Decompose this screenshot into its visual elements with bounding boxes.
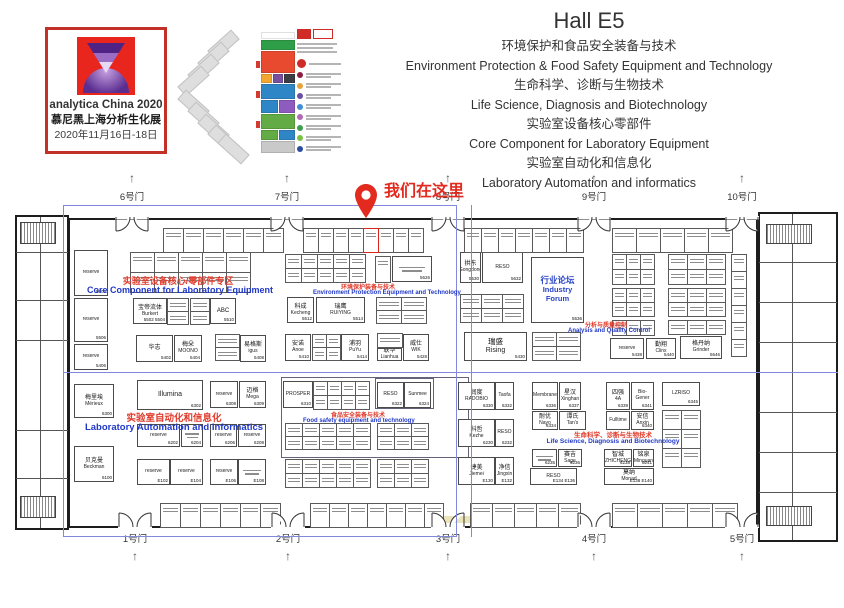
booth: 瑞鹰RUIYING5514	[316, 297, 365, 323]
booth-cell	[706, 302, 726, 317]
booth-name-en: Sunmee	[408, 392, 427, 398]
booth-cell	[285, 459, 303, 474]
booth-cell	[532, 228, 550, 253]
booth-number: E130	[482, 479, 493, 484]
booth-name-en: RUIYING	[330, 311, 351, 317]
booth-number: 6202	[168, 441, 178, 446]
booth-cell	[411, 459, 429, 474]
booth-number: 5428	[417, 355, 427, 360]
booth: RESO6232	[495, 419, 514, 447]
booth-cell	[411, 473, 429, 488]
zone-label-en: Environment Protection Equipment and Tec…	[313, 290, 457, 296]
booth-name-en: Jiemei	[469, 472, 483, 478]
booth: 莫纳MonadE138 E140	[604, 468, 654, 485]
booth: Illumina6302	[137, 380, 203, 410]
booth-cell	[333, 228, 349, 253]
booth: 四强4A6339	[606, 382, 630, 410]
booth: 易格斯igus5408	[240, 335, 266, 362]
booth-name-en: MOONO	[178, 349, 197, 355]
booth-number: 5630	[469, 277, 479, 282]
booth-name-en: reserve	[216, 469, 233, 475]
booth-cell	[183, 228, 204, 253]
booth-cell	[303, 228, 319, 253]
booth-name-en: Fulltime	[609, 418, 627, 424]
booth-cell	[336, 473, 354, 488]
booth-name-cn: 瑞盛	[488, 338, 503, 347]
booth-cell	[319, 423, 337, 437]
booth: 科成Kecheng5512	[287, 297, 314, 323]
booth-cell	[514, 503, 537, 528]
booth-cell	[302, 423, 320, 437]
booth-number: 6238	[620, 461, 630, 466]
booth: 格丹纳Grinder5646	[680, 336, 722, 359]
booth-cell	[401, 310, 427, 324]
booth-number: 6230	[483, 441, 493, 446]
booth-number: 6241	[642, 461, 652, 466]
booth-cell	[393, 228, 409, 253]
booth-name-en: RADOBIO	[465, 397, 488, 403]
booth-cell	[285, 268, 302, 283]
booth-cell	[394, 436, 412, 450]
gate-arrow-icon: ↑	[284, 171, 290, 185]
booth-number: 5646	[710, 353, 720, 358]
booth-cell	[160, 503, 181, 528]
booth-name-en: Mérieux	[85, 402, 103, 408]
booth-cell	[301, 268, 318, 283]
booth-cell	[376, 297, 402, 311]
gate-arrow-icon: ↑	[129, 171, 135, 185]
gate-doors-icon	[118, 512, 152, 528]
booth-cell	[681, 448, 701, 468]
booth-name-en: reserve	[83, 354, 100, 360]
booth-cell	[684, 228, 709, 253]
booth-cell	[336, 423, 354, 437]
booth-number: 6330	[483, 404, 493, 409]
booth-number: 6332	[502, 404, 512, 409]
booth-name-en: LZRISO	[672, 391, 690, 397]
booth-cell	[312, 347, 327, 361]
zone-label-en: Analysis and Quality Control	[568, 328, 646, 334]
booth-name-en: reserve	[83, 270, 100, 276]
gate-doors-icon	[270, 216, 304, 232]
booth: reserveE102	[137, 459, 170, 485]
booth-number: 6324	[419, 402, 429, 407]
booth-number: 6309	[254, 402, 264, 407]
booth-cell	[731, 322, 747, 340]
booth-cell	[687, 302, 707, 317]
booth-cell	[612, 254, 627, 270]
booth: Bio-Gener6341	[631, 382, 654, 410]
booth-cell	[706, 288, 726, 303]
gate-label: 2号门	[276, 531, 300, 545]
booth: 捷美JiemeiE130	[458, 457, 495, 485]
booth: 智城ZHICHENG6238	[604, 449, 632, 467]
booth-cell	[668, 302, 688, 317]
booth-name-en: Bio-Gener	[632, 390, 653, 402]
booth-cell	[319, 436, 337, 450]
booth: reserve5438	[610, 338, 644, 359]
booth-name-en: Beckman	[84, 465, 105, 471]
booth-cell	[215, 334, 240, 348]
booth-number: 5440	[664, 353, 674, 358]
booth-cell	[731, 305, 747, 323]
booth-name-en: reserve	[83, 317, 100, 323]
booth-number: 5406	[96, 364, 106, 369]
booth: Fulltime	[606, 411, 630, 430]
booth-name-en: Tan's	[567, 421, 579, 427]
booth-number: 6300	[102, 412, 112, 417]
booth-cell	[681, 429, 701, 449]
gate-label: 3号门	[436, 531, 460, 545]
booth-cell	[220, 503, 241, 528]
booth-cell	[355, 381, 370, 396]
booth-cell	[405, 503, 425, 528]
booth-cell	[353, 423, 371, 437]
booth-number: 5410	[299, 355, 309, 360]
location-pin-icon	[353, 183, 379, 219]
booth-cell	[481, 228, 499, 253]
booth-cell	[636, 228, 661, 253]
booth-number: 5506	[96, 336, 106, 341]
booth: PROSPER6310	[283, 381, 313, 408]
booth-cell	[353, 436, 371, 450]
stairs-icon	[20, 496, 56, 518]
booth-number: 5502 5504	[144, 318, 165, 323]
booth: reserve6308	[210, 381, 238, 408]
booth: RESOE134 E136	[530, 468, 577, 485]
booth-cell	[626, 302, 641, 317]
booth-cell	[333, 268, 350, 283]
booth-cell	[662, 448, 682, 468]
booth-number: 6236	[570, 461, 580, 466]
booth-cell	[515, 228, 533, 253]
booth-cell	[640, 288, 655, 303]
booth-name-en: Grinder	[693, 348, 710, 354]
booth-name-en: reserve	[215, 433, 232, 439]
booth-number: 5402	[161, 356, 171, 361]
booth-cell	[313, 395, 328, 410]
booth-name-en: RESO	[383, 392, 397, 398]
booth-cell	[190, 298, 210, 312]
booth-cell	[243, 228, 264, 253]
booth-cell	[612, 302, 627, 317]
booth-cell	[470, 503, 493, 528]
booth-cell	[301, 254, 318, 269]
booth-cell	[313, 381, 328, 396]
booth-name-en: Mega	[246, 395, 259, 401]
gate-arrow-icon: ↑	[285, 549, 291, 563]
booth: 安信Anxin6340	[631, 411, 654, 430]
booth-cell	[626, 288, 641, 303]
booth-number: 5438	[632, 353, 642, 358]
booth-cell	[731, 288, 747, 306]
booth-cell	[285, 423, 303, 437]
booth-name-en: WIK	[411, 348, 420, 354]
booth-cell	[319, 473, 337, 488]
gate-arrow-icon: ↑	[739, 549, 745, 563]
booth-name-en: RESO	[495, 265, 509, 271]
booth-cell	[687, 288, 707, 303]
booth-name-en: 4A	[615, 397, 621, 403]
gate-arrow-icon: ↑	[739, 171, 745, 185]
booth-name-en: igus	[248, 349, 257, 355]
booth: 瑞盛Rising5430	[464, 332, 527, 361]
gate-doors-icon	[577, 216, 611, 232]
booth-cell	[640, 254, 655, 270]
booth: 谭氏Tan's	[559, 411, 586, 430]
booth: ABC5510	[210, 298, 236, 324]
booth-number: 6308	[226, 402, 236, 407]
booth-cell	[460, 308, 482, 323]
booth-number: E132	[501, 479, 512, 484]
booth-cell	[285, 254, 302, 269]
booth: E108	[238, 459, 266, 485]
booth-number: 6339	[618, 404, 628, 409]
booth-name-cn: ABC	[217, 308, 229, 315]
booth-cell	[626, 254, 641, 270]
booth-cell	[498, 228, 516, 253]
booth-number: E108	[253, 479, 264, 484]
booth-cell	[215, 347, 240, 361]
booth-number: 6337	[569, 404, 579, 409]
industry-forum-booth: 行业论坛Industry Forum5536	[531, 257, 584, 323]
booth: 勤翔Clinx5440	[646, 338, 676, 359]
booth-cell	[302, 473, 320, 488]
gate-arrow-icon: ↑	[591, 171, 597, 185]
booth-number: 6235	[545, 461, 555, 466]
booth: RESO6322	[377, 382, 404, 408]
booth-name-en: reserve	[145, 469, 162, 475]
booth-cell	[178, 252, 203, 273]
booth-cell	[377, 333, 403, 348]
booth-name-en: Membrane	[533, 393, 557, 399]
booth-name-en: Taofa	[498, 393, 510, 399]
booth-cell	[285, 473, 303, 488]
booth-cell	[662, 410, 682, 430]
booth: reserveE106	[210, 459, 238, 485]
booth: reserveE104	[170, 459, 203, 485]
booth-number: 5408	[254, 356, 264, 361]
booth: 安诺Anoe5410	[285, 334, 311, 361]
booth-cell	[341, 381, 356, 396]
booth: 赛吉Sage6236	[558, 449, 582, 467]
floor-plan: 我们在这里 reserve5606reserve5506reserve5406宝…	[0, 0, 844, 608]
booth-cell	[637, 503, 663, 528]
booth-cell	[481, 308, 503, 323]
booth-name-en: Lianhua	[381, 355, 399, 361]
booth: Taofa6332	[495, 382, 514, 410]
booth-cell	[668, 288, 688, 303]
booth-cell	[200, 503, 221, 528]
booth-cell	[612, 228, 637, 253]
gate-label: 7号门	[275, 189, 299, 203]
booth-cell	[333, 254, 350, 269]
booth: 贝克曼Beckman6100	[74, 446, 114, 482]
zone-label-en: Laboratory Automation and Informatics	[76, 422, 272, 433]
booth-number: 5536	[572, 317, 582, 322]
booth-number: E104	[190, 479, 201, 484]
booth-number: 5510	[224, 318, 234, 323]
stairs-icon	[766, 506, 812, 526]
gate-label: 5号门	[730, 531, 754, 545]
booth-number: 6208	[254, 441, 264, 446]
booth-cell	[348, 228, 364, 253]
booth: 拱东Gongdong5630	[460, 252, 481, 283]
booth-cell	[327, 381, 342, 396]
booth-cell	[612, 503, 638, 528]
booth-cell	[202, 252, 227, 273]
booth-cell	[687, 320, 707, 335]
booth: 6235	[532, 449, 557, 467]
booth-cell	[536, 503, 559, 528]
gate-arrow-icon: ↑	[132, 549, 138, 563]
booth-cell	[319, 459, 337, 474]
booth: Membrane6336	[532, 382, 558, 410]
booth-cell	[681, 410, 701, 430]
booth: 净信JingxinE132	[495, 457, 514, 485]
booth-cell	[336, 436, 354, 450]
booth-cell	[341, 395, 356, 410]
booth-number: 6310	[301, 402, 311, 407]
stairs-icon	[20, 222, 56, 244]
booth-number: E134 E136	[553, 479, 575, 484]
booth-cell	[731, 254, 747, 272]
booth: Sunmee6324	[404, 382, 431, 408]
booth-cell	[310, 503, 330, 528]
booth-cell	[626, 269, 641, 285]
we-are-here-label: 我们在这里	[384, 177, 464, 201]
booth-name-en: Kezhe	[469, 434, 483, 440]
booth-cell	[394, 423, 412, 437]
booth-cell	[348, 503, 368, 528]
booth-cell	[353, 473, 371, 488]
booth: 润度RADOBIO6330	[458, 382, 495, 410]
booth-name-en: reserve	[244, 433, 261, 439]
booth-cell	[411, 436, 429, 450]
booth-cell	[502, 308, 524, 323]
booth-cell	[302, 436, 320, 450]
booth-cell	[492, 503, 515, 528]
booth-cell	[386, 503, 406, 528]
gate-doors-icon	[431, 216, 465, 232]
gate-label: 6号门	[120, 189, 144, 203]
booth-cell	[226, 252, 251, 273]
booth-cell	[167, 298, 189, 312]
booth-cell	[378, 228, 394, 253]
booth-cell	[556, 332, 581, 347]
booth-cell	[706, 269, 726, 285]
booth-number: 5514	[353, 317, 363, 322]
booth-cell	[640, 302, 655, 317]
booth: 科哲Kezhe6230	[458, 419, 495, 447]
booth-name-en: PuYu	[349, 348, 361, 354]
booth: LZRISO6345	[662, 382, 700, 406]
booth: 耐优Nayo6334	[532, 411, 558, 430]
booth-number: 5632	[511, 277, 521, 282]
booth-cell	[502, 294, 524, 309]
booth-cell	[556, 346, 581, 361]
booth-cell	[203, 228, 224, 253]
booth: 梅里埃Mérieux6300	[74, 384, 114, 418]
booth-cell	[394, 459, 412, 474]
booth-cell	[302, 459, 320, 474]
booth-cell	[411, 423, 429, 437]
booth-number: 6232	[502, 441, 512, 446]
left-service-block	[15, 215, 69, 530]
gate-label: 10号门	[727, 189, 757, 203]
booth-cell	[408, 228, 424, 253]
booth-name-en: Illumina	[158, 391, 182, 399]
booth-number: 5512	[302, 317, 312, 322]
gate-arrow-icon: ↑	[445, 549, 451, 563]
booth-number: 6345	[688, 400, 698, 405]
booth-cell	[367, 503, 387, 528]
booth-number: 6341	[642, 404, 652, 409]
booth-cell	[706, 320, 726, 335]
gate-doors-icon	[577, 512, 611, 528]
booth-cell	[687, 503, 713, 528]
booth-cell	[190, 311, 210, 325]
booth-cell	[394, 473, 412, 488]
booth-cell	[336, 459, 354, 474]
gate-doors-icon	[725, 216, 759, 232]
booth-cell	[377, 473, 395, 488]
booth-number: 6206	[225, 441, 235, 446]
booth-cell	[460, 294, 482, 309]
gate-label: 1号门	[123, 531, 147, 545]
booth-cell	[660, 228, 685, 253]
booth-cell	[375, 256, 391, 283]
booth-name-en: Industry Forum	[532, 286, 583, 303]
booth: 联华Lianhua	[377, 348, 402, 361]
booth-number: E138 E140	[630, 479, 652, 484]
booth-number: 6100	[102, 476, 112, 481]
zone-label-en: Food safety equipment and technology	[303, 418, 413, 424]
booth-cell	[377, 423, 395, 437]
gate-arrow-icon: ↑	[591, 549, 597, 563]
booth-cell	[549, 228, 567, 253]
booth-name-en: reserve	[216, 392, 233, 398]
booth-cell	[532, 346, 557, 361]
booth-name-en: RESO	[497, 430, 511, 436]
booth-cell	[377, 436, 395, 450]
booth-number: 6334	[546, 424, 556, 429]
booth-cell	[353, 459, 371, 474]
zone-label-en: Core Component for Laboratory Equipment	[85, 285, 275, 295]
exhibition-hall-map-image: analytica China 2020 慕尼黑上海分析生化展 2020年11月…	[0, 0, 844, 608]
gate-doors-icon	[271, 512, 305, 528]
booth-cell	[180, 503, 201, 528]
booth-cell	[376, 310, 402, 324]
booth-cell	[317, 254, 334, 269]
booth-number: 5404	[190, 356, 200, 361]
booth-cell	[349, 268, 366, 283]
booth-name-cn: 华志	[148, 345, 160, 352]
booth: 华志5402	[136, 335, 173, 362]
gate-label: 9号门	[582, 189, 606, 203]
gate-label: 4号门	[582, 531, 606, 545]
gate-doors-icon	[431, 512, 465, 528]
booth-cell	[731, 271, 747, 289]
booth: 浦羽PuYu5414	[341, 334, 369, 361]
booth-cell	[687, 254, 707, 270]
booth-cell	[163, 228, 184, 253]
booth: 铭泉Minquan6241	[633, 449, 654, 467]
booth-name-en: PROSPER	[286, 392, 310, 398]
booth-cell	[481, 294, 503, 309]
booth-name-en: reserve	[619, 346, 636, 352]
booth-name-en: Rising	[486, 347, 505, 355]
